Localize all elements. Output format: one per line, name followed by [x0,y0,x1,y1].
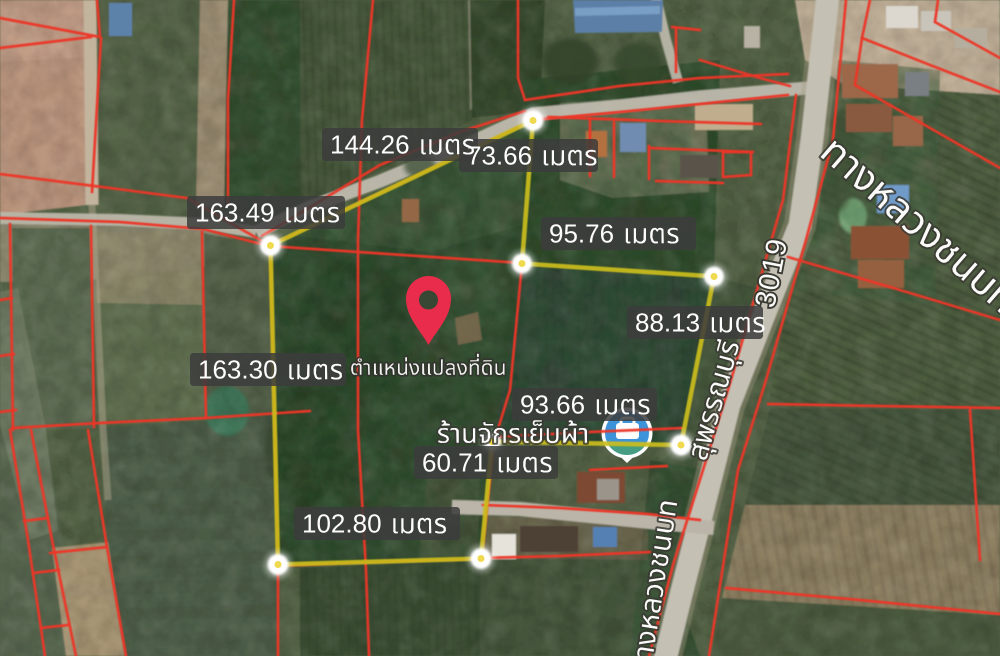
svg-text:88.13: 88.13 [635,308,700,338]
svg-text:95.76: 95.76 [549,219,614,249]
svg-text:73.66: 73.66 [467,141,532,171]
svg-text:144.26: 144.26 [330,130,410,160]
svg-text:60.71: 60.71 [422,448,487,478]
svg-text:163.49: 163.49 [195,198,275,228]
svg-text:93.66: 93.66 [520,390,585,420]
svg-text:163.30: 163.30 [198,355,278,385]
svg-text:102.80: 102.80 [302,509,382,539]
